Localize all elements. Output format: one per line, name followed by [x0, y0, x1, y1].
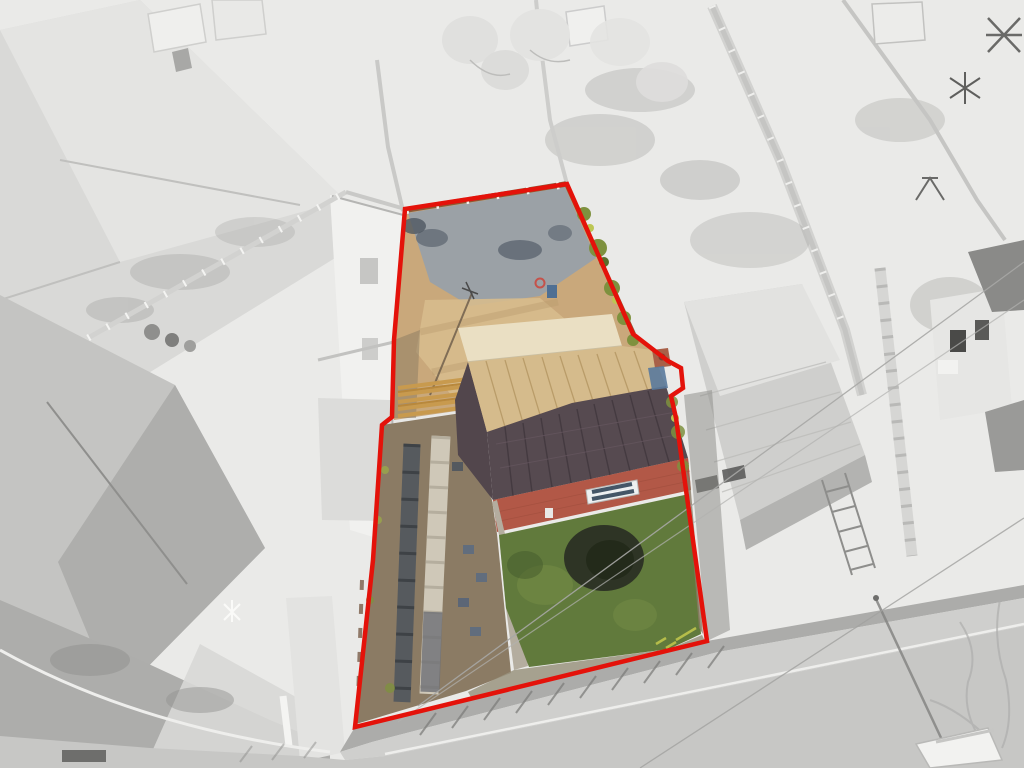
gravel-dark-patch-3: [548, 225, 572, 241]
front-garden-texture: [50, 644, 130, 676]
aerial-photo: [0, 0, 1024, 768]
far-right-bay: [938, 360, 958, 374]
front-garden-texture-2: [166, 687, 234, 713]
scattered-slab-3: [458, 598, 469, 607]
tree-canopy-2: [481, 50, 529, 90]
garden-texture-r2: [690, 212, 810, 268]
scattered-slab: [463, 545, 474, 554]
bin-3: [184, 340, 196, 352]
bin-2: [165, 333, 179, 347]
dark-bush-core: [586, 540, 634, 580]
slab-track-light-dark-end: [430, 612, 433, 692]
weed-tuft: [381, 466, 389, 474]
tree-canopy-3: [510, 9, 570, 61]
tree-canopy-5: [636, 62, 688, 102]
lawn-dark-patch: [507, 551, 543, 579]
scattered-slab-5: [452, 462, 463, 471]
bin: [144, 324, 160, 340]
tall-house-window: [360, 258, 378, 284]
drain-grate: [62, 750, 106, 762]
lawn-light-patch-2: [613, 599, 657, 631]
weed-tuft-4: [385, 683, 395, 693]
blue-bin: [547, 285, 557, 298]
vent-panel: [545, 508, 553, 518]
far-right-window-2: [975, 320, 989, 340]
scattered-slab-2: [476, 573, 487, 582]
tree-canopy-4: [590, 18, 650, 66]
scattered-slab-4: [470, 627, 481, 636]
shed-top-right: [872, 2, 925, 44]
garden-texture-r3: [660, 160, 740, 200]
shed-roof-2: [212, 0, 266, 40]
telegraph-pole: [873, 595, 879, 601]
gravel-dark-patch-2: [498, 240, 542, 260]
